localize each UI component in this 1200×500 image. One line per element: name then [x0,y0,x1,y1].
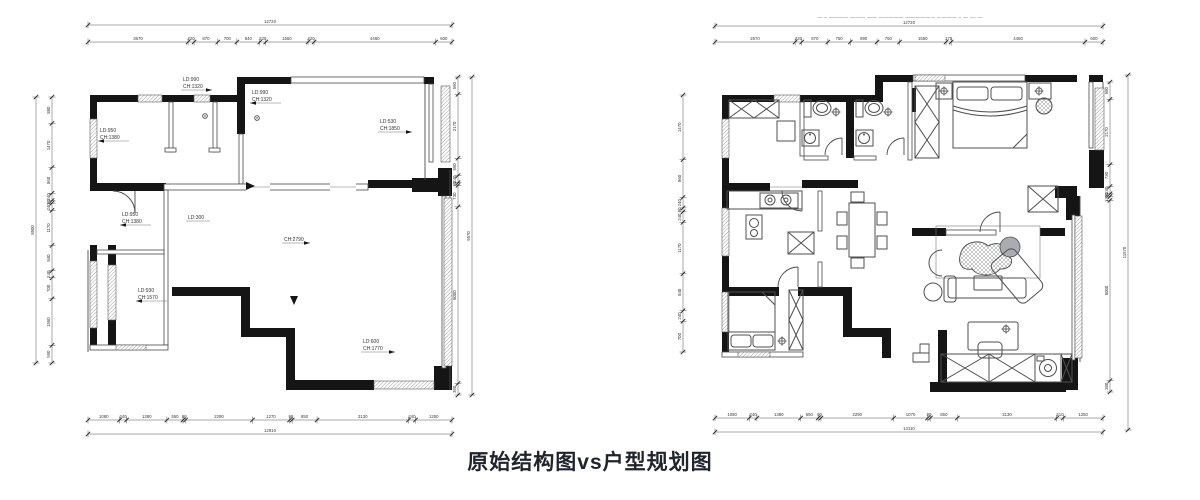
page-title: 原始结构图vs户型规划图 [0,446,1180,476]
svg-text:590: 590 [452,163,457,171]
floor-drain-icon [831,107,840,116]
svg-text:840: 840 [46,254,51,262]
svg-text:4460: 4460 [1013,36,1023,41]
svg-text:870: 870 [811,36,819,41]
bathroom-2 [856,100,893,146]
svg-text:590: 590 [452,81,457,89]
svg-text:240: 240 [119,414,127,419]
dim-chain-left-bottom: 1080240138055090229012709085031302401250 [86,414,454,423]
washing-machine-icon [1035,354,1061,382]
right-floor-plan: — – ———— ——— —— ————— —————— ———— – — ––… [677,15,1131,436]
dim-chain-right-top: 267022087075089075015501704460600 [713,36,1105,45]
left-plan-door-swings [113,191,135,213]
kitchen [727,191,814,254]
svg-text:850: 850 [940,412,948,417]
sink-icon [802,130,819,146]
left-floor-plan: LD:990 CH:1320 LD:990 CH:1320 LD:950 CH:… [30,19,475,437]
right-plan-walls [722,75,1104,392]
svg-text:12720: 12720 [264,19,277,24]
svg-text:730: 730 [1104,171,1109,179]
svg-text:240: 240 [46,193,51,201]
svg-text:3130: 3130 [358,414,368,419]
sink-icon [856,130,873,146]
svg-text:240: 240 [677,312,682,320]
dim-chain-right-bottom: 1080240138055090229010709085031302101250 [713,412,1105,421]
svg-text:1250: 1250 [429,414,439,419]
svg-text:1550: 1550 [282,36,292,41]
svg-text:90: 90 [817,412,822,417]
svg-text:3670: 3670 [133,36,143,41]
watermark-text: — – ———— ——— —— ————— —————— ———— – — ––… [817,15,982,20]
window-annotation: LD:530 [380,119,396,125]
svg-text:1080: 1080 [99,414,109,419]
dim-chain-left-left: 88014708602409024011708402407001550590 [46,95,55,365]
window-annotation: LD:990 [252,90,268,96]
svg-text:600: 600 [440,36,448,41]
svg-text:870: 870 [202,36,210,41]
svg-text:220: 220 [259,36,267,41]
stool [1036,98,1052,114]
bed [953,82,1027,148]
svg-text:860: 860 [677,174,682,182]
svg-text:1470: 1470 [677,122,682,132]
svg-text:90: 90 [927,412,932,417]
entry-closet [729,100,795,141]
toilet-icon [856,100,883,117]
dim-chain-right-right: 5802170730240901306000380 [1104,80,1113,394]
window-annotation: LD:950 [100,128,116,134]
svg-text:240: 240 [677,198,682,206]
svg-text:550: 550 [171,414,179,419]
lamp-icon [1001,324,1010,333]
svg-text:580: 580 [1104,87,1109,95]
svg-text:3130: 3130 [1002,412,1012,417]
svg-text:750: 750 [835,36,843,41]
desk [968,322,1018,358]
svg-text:4460: 4460 [370,36,380,41]
window-annotation: LD:950 [122,212,138,218]
svg-text:380: 380 [1104,382,1109,390]
svg-text:12720: 12720 [903,20,916,25]
lamp-icon [939,86,948,95]
floor-drain-icon [883,107,892,116]
svg-text:1550: 1550 [46,317,51,327]
svg-text:2290: 2290 [214,414,224,419]
window-annotation: LD:930 [138,288,154,294]
svg-text:840: 840 [245,36,253,41]
svg-text:2170: 2170 [452,121,457,131]
floorplan-canvas: LD:990 CH:1320 LD:990 CH:1320 LD:950 CH:… [0,0,1200,500]
window-annotation: CH:1770 [363,346,383,352]
stove-icon [760,193,798,208]
svg-text:1380: 1380 [142,414,152,419]
svg-text:550: 550 [806,412,814,417]
svg-text:220: 220 [307,36,315,41]
window-annotation: CH:1850 [380,126,400,132]
svg-text:390: 390 [452,385,457,393]
left-plan-walls [90,77,452,390]
window-annotation: CH:1320 [183,84,203,90]
svg-text:170: 170 [945,36,953,41]
dim-chain-right-top-total: 12720 [713,20,1105,29]
dim-chain-left-right: 5902170590240907306000390 [452,75,461,397]
svg-text:730: 730 [452,192,457,200]
svg-text:9570: 9570 [466,231,471,241]
svg-text:240: 240 [408,414,416,419]
svg-text:1080: 1080 [727,412,737,417]
svg-text:700: 700 [677,332,682,340]
svg-text:210: 210 [1056,412,1064,417]
svg-text:1170: 1170 [46,223,51,233]
svg-text:90: 90 [288,414,293,419]
svg-text:90: 90 [182,414,187,419]
svg-text:13110: 13110 [903,426,915,431]
dim-chain-left-top: 367022087070084022015502204460600 [86,36,454,45]
svg-text:240: 240 [749,412,757,417]
svg-text:240: 240 [452,175,457,183]
svg-text:240: 240 [46,203,51,211]
svg-text:1380: 1380 [774,412,784,417]
svg-text:240: 240 [1104,186,1109,194]
svg-text:600: 600 [1090,36,1098,41]
dim-chain-left-top-total: 12720 [86,19,454,28]
master-bedroom [915,82,1052,158]
lamp-icon [1034,86,1043,95]
svg-text:1170: 1170 [677,243,682,253]
svg-text:240: 240 [677,213,682,221]
svg-text:240: 240 [46,270,51,278]
svg-text:750: 750 [885,36,893,41]
svg-text:1250: 1250 [1078,412,1088,417]
svg-text:12910: 12910 [264,428,277,433]
svg-text:90: 90 [452,181,457,186]
svg-text:2670: 2670 [750,36,760,41]
svg-text:1470: 1470 [46,140,51,150]
lamp-icon [777,336,786,345]
window-annotation: LD:600 [363,339,379,345]
svg-text:2290: 2290 [853,412,863,417]
svg-text:6000: 6000 [1104,285,1109,295]
svg-text:6000: 6000 [452,290,457,300]
armchair [929,250,942,276]
dining-table [837,192,887,268]
svg-text:1550: 1550 [918,36,928,41]
window-annotation: LD:990 [183,77,199,83]
svg-text:700: 700 [224,36,232,41]
hall-closet [1028,186,1058,212]
kitchen-sink-icon [746,215,762,239]
dim-chain-right-right-total: 11570 [1122,73,1131,432]
svg-text:700: 700 [46,284,51,292]
svg-text:880: 880 [46,106,51,114]
dim-chain-left-bottom-total: 12910 [86,428,454,437]
floorplans-svg: LD:990 CH:1320 LD:990 CH:1320 LD:950 CH:… [0,0,1200,500]
svg-text:8500: 8500 [30,225,35,235]
toilet-icon [804,100,831,117]
svg-text:220: 220 [795,36,803,41]
dim-chain-left-right-total: 9570 [466,75,475,397]
beam-annotation: LD:300 [188,215,204,221]
fridge-icon [788,232,814,254]
svg-text:220: 220 [187,36,195,41]
dim-chain-right-bottom-total: 13110 [713,426,1105,435]
height-annotation: CH:2790 [284,237,304,243]
svg-text:860: 860 [46,176,51,184]
svg-text:1270: 1270 [266,414,276,419]
balcony-storage [941,354,1072,382]
svg-text:1070: 1070 [906,412,916,417]
svg-text:590: 590 [46,350,51,358]
svg-text:890: 890 [860,36,868,41]
svg-text:840: 840 [677,288,682,296]
svg-text:11570: 11570 [1122,246,1127,258]
second-bedroom [728,290,803,350]
svg-text:130: 130 [1104,194,1109,202]
dim-chain-right-left: 1470860240902401170840240700 [677,93,686,354]
svg-text:850: 850 [301,414,309,419]
svg-text:2170: 2170 [1104,127,1109,137]
svg-text:90: 90 [677,207,682,212]
side-table [924,283,942,301]
dim-chain-left-left-total: 8500 [30,95,39,365]
